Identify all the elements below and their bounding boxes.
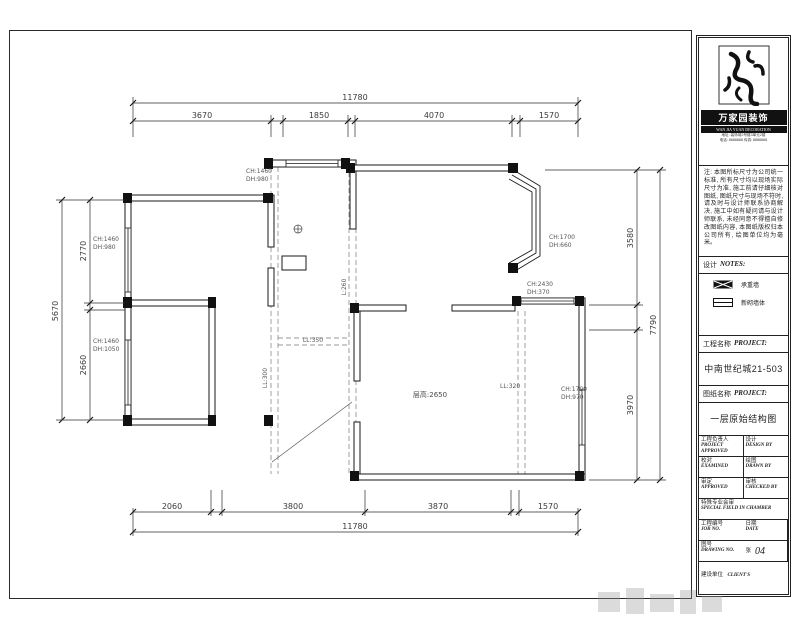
field-en: EXAMINED xyxy=(701,464,741,470)
field-en: JOB NO. xyxy=(701,527,742,533)
dim-left-2: 2660 xyxy=(79,355,88,375)
drawing-sheet: 11780 3670 1850 4070 1570 2060 3800 3870… xyxy=(0,0,800,640)
legend-row-new-wall: 新砌墙体 xyxy=(713,298,788,307)
dim-left-1: 2770 xyxy=(79,241,88,261)
ceiling-height-label: 层高:2650 xyxy=(413,390,447,399)
drain-symbol xyxy=(294,225,302,233)
legend: 承重墙 新砌墙体 xyxy=(699,274,788,336)
bay-window xyxy=(509,171,540,271)
win-left-bottom-ch: CH:1460 xyxy=(93,338,119,345)
field-approved: 审定 APPROVED xyxy=(699,478,744,499)
beam-dashed-lines xyxy=(271,167,525,474)
dim-bottom-1: 2060 xyxy=(162,502,182,511)
project-name-header: 工程名称 PROJECT: xyxy=(699,336,788,353)
client-label-cn: 建设单位 xyxy=(701,572,723,578)
approval-table: 工程负责人 PROJECT APPROVED 设计 DESIGN BY 校对 E… xyxy=(699,436,788,594)
field-design-by: 设计 DESIGN BY xyxy=(744,436,789,457)
dim-top-3: 4070 xyxy=(424,111,444,120)
dim-top-overall: 11780 xyxy=(342,93,367,102)
dim-bottom-2: 3800 xyxy=(283,502,303,511)
notes-header: 设计 NOTES: xyxy=(699,257,788,274)
dim-right-overall: 7790 xyxy=(649,315,658,335)
field-special-field: 特殊专业会审 SPECIAL FIELD IN CHAMBER xyxy=(699,499,788,520)
logo-section: 万家园装饰 WAN JIA YUAN DECORATION 地址: 装饰城2号楼… xyxy=(699,38,788,166)
brand-address-line2: 电话: 8888888 传真: 8888888 xyxy=(720,138,767,142)
field-en: DRAWING NO. xyxy=(701,548,742,554)
dimension-lines xyxy=(56,97,666,536)
walls xyxy=(125,160,585,480)
beam-label-v-left: LL:300 xyxy=(262,368,269,388)
beam-label-right: LL:320 xyxy=(500,383,520,390)
project-name-value: 中南世纪城21-503 xyxy=(699,353,788,386)
win-bay-dh: DH:660 xyxy=(549,242,572,249)
beam-label-h: LL:350 xyxy=(303,337,323,344)
win-right-mid-ch: CH:2430 xyxy=(527,281,553,288)
dim-bottom-3: 3870 xyxy=(428,502,448,511)
notes-label-en: NOTES: xyxy=(720,261,745,269)
win-right-low-ch: CH:1790 xyxy=(561,386,587,393)
brand-logo-icon xyxy=(715,44,773,106)
drawing-name-header: 图纸名称 PROJECT: xyxy=(699,386,788,403)
field-checked-by: 审核 CHECKED BY xyxy=(744,478,789,499)
legend-row-bearing-wall: 承重墙 xyxy=(713,280,788,289)
window-annotations: CH:1460 DH:980 CH:1460 DH:1050 CH:1460 D… xyxy=(93,168,587,401)
field-en: DATE xyxy=(746,527,786,533)
win-left-bottom-dh: DH:1050 xyxy=(93,346,120,353)
beam-label-v-mid: L:260 xyxy=(341,278,348,295)
dim-right-1: 3580 xyxy=(626,228,635,248)
win-left-top-dh: DH:980 xyxy=(93,244,116,251)
win-right-mid-dh: DH:370 xyxy=(527,289,550,296)
project-label-en: PROJECT: xyxy=(734,340,767,348)
field-sheet-no: 张 04 xyxy=(744,541,789,562)
legend-label-bearing-wall: 承重墙 xyxy=(741,280,759,289)
field-drawn-by: 绘图 DRAWN BY xyxy=(744,457,789,478)
legend-label-new-wall: 新砌墙体 xyxy=(741,298,765,307)
project-label-cn: 工程名称 xyxy=(703,339,731,349)
field-en: PROJECT APPROVED xyxy=(701,443,741,454)
field-date: 日期 DATE xyxy=(744,520,789,541)
dim-top-1: 3670 xyxy=(192,111,212,120)
dim-top-2: 1850 xyxy=(309,111,329,120)
drawing-label-en: PROJECT: xyxy=(734,390,767,398)
win-left-top-ch: CH:1460 xyxy=(93,236,119,243)
brand-name: 万家园装饰 xyxy=(701,110,787,125)
sheet-no-value: 04 xyxy=(755,546,765,557)
field-examined: 校对 EXAMINED xyxy=(699,457,744,478)
drawing-name-value: 一层原始结构图 xyxy=(699,403,788,436)
field-en: APPROVED xyxy=(701,485,741,491)
win-top-ch: CH:1460 xyxy=(246,168,272,175)
new-wall-swatch-icon xyxy=(713,298,733,307)
sheet-no-label: 张 xyxy=(746,548,752,554)
dim-left-overall: 5670 xyxy=(51,301,60,321)
win-right-low-dh: DH:970 xyxy=(561,394,584,401)
bearing-wall-swatch-icon xyxy=(713,280,733,289)
field-drawing-no: 图号 DRAWING NO. xyxy=(699,541,744,562)
floor-plan: 11780 3670 1850 4070 1570 2060 3800 3870… xyxy=(0,0,800,640)
drawing-label-cn: 图纸名称 xyxy=(703,389,731,399)
dim-bottom-4: 1570 xyxy=(538,502,558,511)
dim-top-4: 1570 xyxy=(539,111,559,120)
notes-label-cn: 设计 xyxy=(703,260,717,270)
win-bay-ch: CH:1700 xyxy=(549,234,575,241)
field-en: SPECIAL FIELD IN CHAMBER xyxy=(701,506,786,512)
client-label-en: CLIENT'S xyxy=(727,573,750,578)
field-project-approved: 工程负责人 PROJECT APPROVED xyxy=(699,436,744,457)
field-en: DRAWN BY xyxy=(746,464,787,470)
title-block: 万家园装饰 WAN JIA YUAN DECORATION 地址: 装饰城2号楼… xyxy=(696,35,791,597)
dim-right-2: 3970 xyxy=(626,395,635,415)
field-job-no: 工程编号 JOB NO. xyxy=(699,520,744,541)
door-swing-line xyxy=(272,402,352,462)
field-en: CHECKED BY xyxy=(746,485,787,491)
dim-bottom-overall: 11780 xyxy=(342,522,367,531)
general-notes: 注: 本图所标尺寸为公司统一标准, 所有尺寸均以现场实际尺寸为准, 施工前请仔细… xyxy=(699,166,788,256)
field-en: DESIGN BY xyxy=(746,443,787,449)
win-top-dh: DH:980 xyxy=(246,176,269,183)
watermark xyxy=(598,586,728,626)
